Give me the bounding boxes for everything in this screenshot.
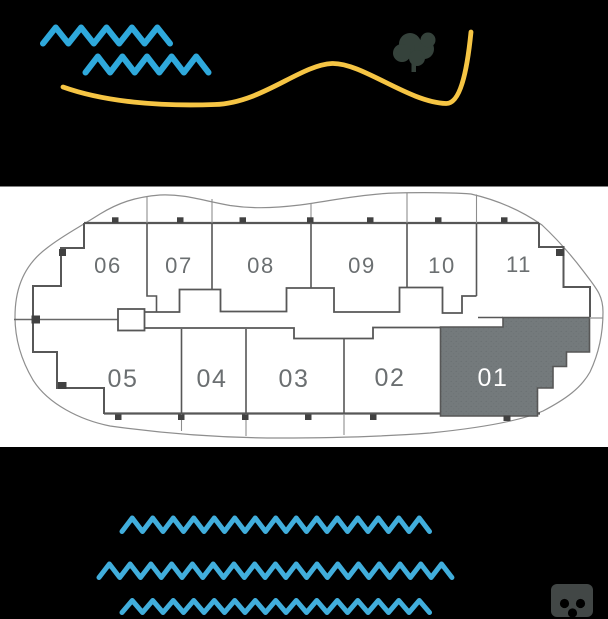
- svg-text:10: 10: [428, 253, 456, 278]
- svg-text:01: 01: [477, 364, 508, 392]
- svg-text:05: 05: [107, 365, 138, 393]
- svg-text:04: 04: [196, 365, 227, 393]
- svg-text:11: 11: [506, 252, 532, 277]
- svg-text:02: 02: [374, 364, 405, 392]
- svg-text:06: 06: [94, 253, 122, 278]
- svg-text:08: 08: [247, 253, 275, 278]
- svg-text:09: 09: [348, 253, 376, 278]
- svg-text:07: 07: [165, 253, 193, 278]
- svg-text:03: 03: [278, 365, 309, 393]
